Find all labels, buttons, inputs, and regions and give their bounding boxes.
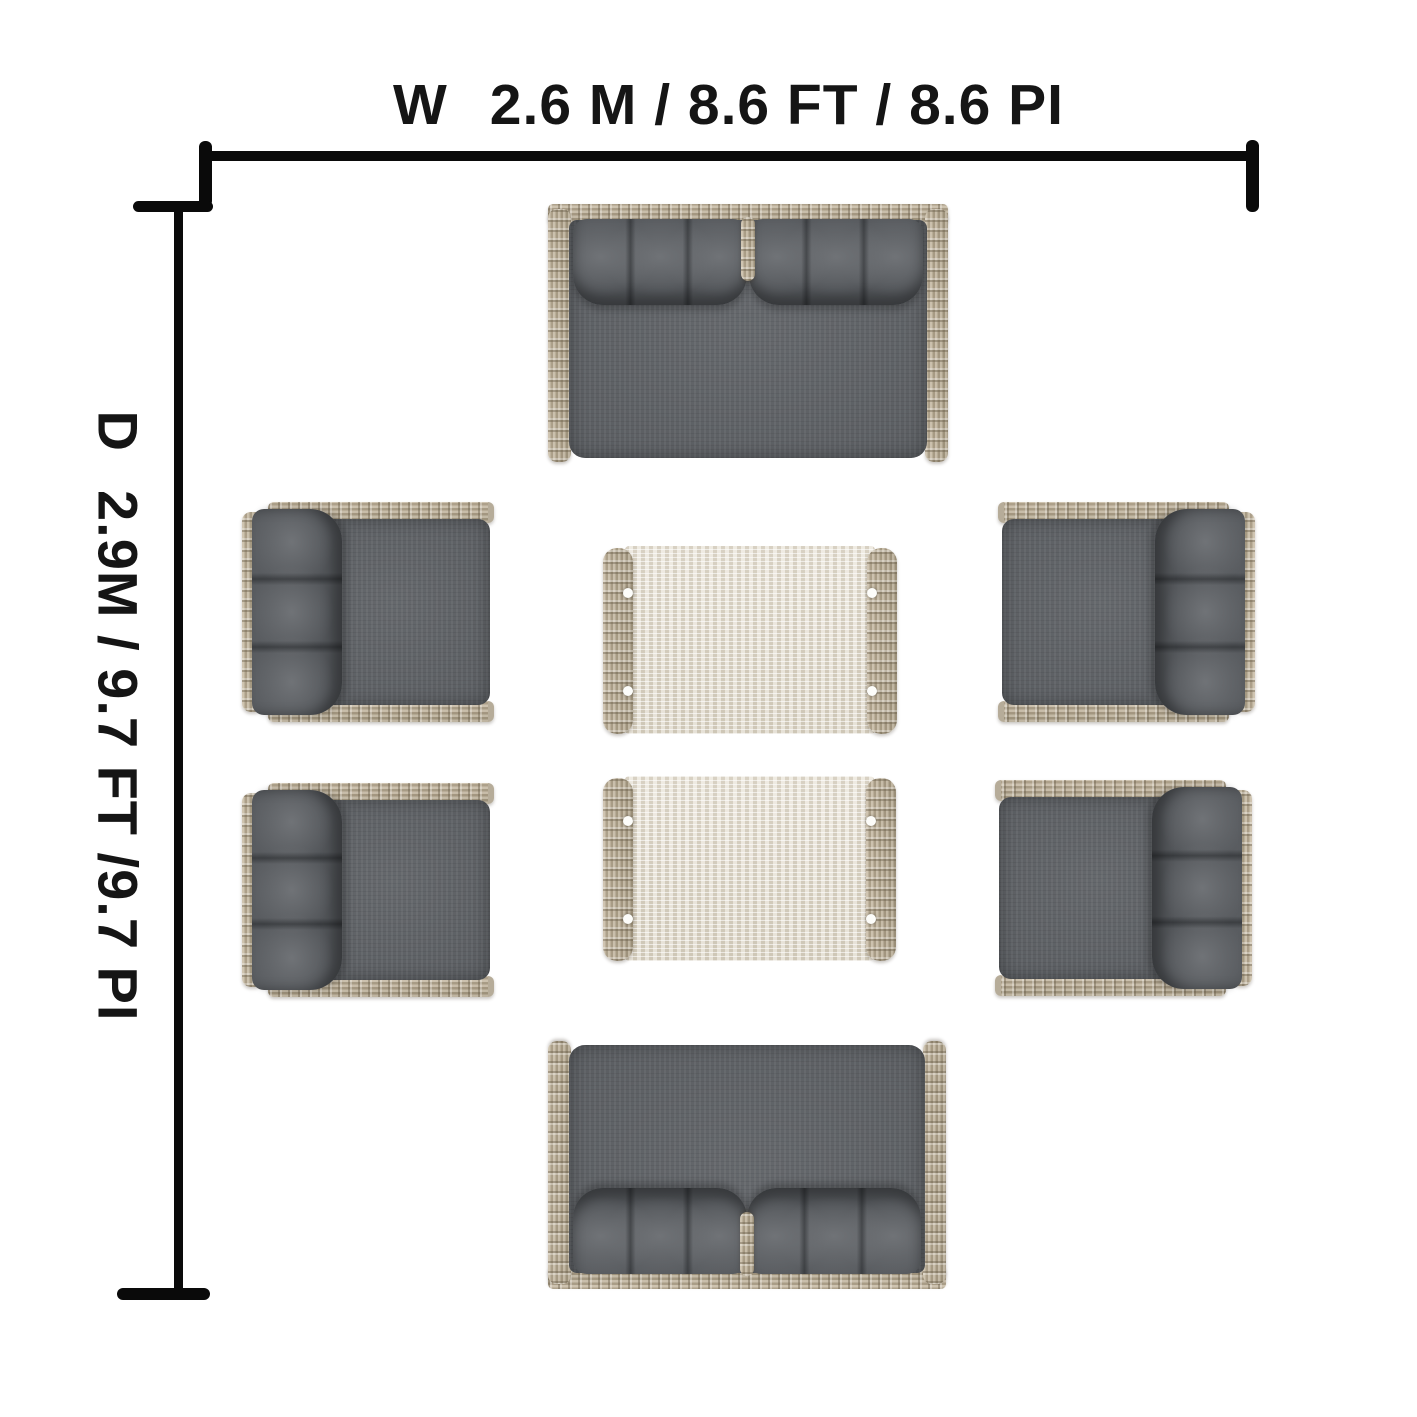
- table-rail-left: [603, 548, 633, 734]
- depth-dimension-tick-top: [133, 201, 213, 212]
- loveseat-center-post: [740, 1212, 754, 1276]
- width-dimension-tick-right: [1246, 140, 1259, 212]
- table-rattan-top: [625, 546, 875, 734]
- coffee-table-bottom: [603, 776, 896, 961]
- diagram-canvas: W 2.6 M / 8.6 FT / 8.6 PI D 2.9M / 9.7 F…: [0, 0, 1417, 1417]
- depth-dimension-tick-bottom: [117, 1288, 210, 1300]
- table-rattan-top: [625, 776, 874, 961]
- table-foot-dot: [867, 588, 877, 598]
- loveseat-top: [548, 204, 948, 462]
- coffee-table-top: [603, 546, 897, 734]
- armchair-top-left: [242, 502, 494, 722]
- armchair-bottom-right: [995, 780, 1252, 996]
- loveseat-arm-right: [925, 209, 948, 462]
- table-foot-dot: [623, 914, 633, 924]
- table-rail-left: [603, 778, 633, 961]
- depth-label-prefix: D: [86, 411, 151, 452]
- width-dimension-tick-left: [199, 141, 212, 207]
- loveseat-arm-right: [923, 1041, 946, 1284]
- loveseat-back-pillow-right: [749, 219, 923, 305]
- depth-dimension-label: D 2.9M / 9.7 FT /9.7 PI: [86, 411, 151, 1022]
- loveseat-back-pillow-left: [573, 1188, 747, 1274]
- table-foot-dot: [623, 686, 633, 696]
- loveseat-center-post: [741, 217, 755, 281]
- armchair-back-pillow: [252, 509, 342, 715]
- depth-dimension-line: [174, 205, 183, 1294]
- table-foot-dot: [623, 588, 633, 598]
- table-rail-right: [867, 548, 897, 734]
- loveseat-bottom: [548, 1041, 946, 1289]
- armchair-back-pillow: [1155, 509, 1245, 715]
- armchair-back-pillow: [1152, 787, 1242, 989]
- armchair-back-pillow: [252, 790, 342, 990]
- table-foot-dot: [866, 914, 876, 924]
- loveseat-arm-left: [548, 1041, 571, 1284]
- table-foot-dot: [623, 816, 633, 826]
- armchair-top-right: [998, 502, 1255, 722]
- width-label-value: 2.6 M / 8.6 FT / 8.6 PI: [490, 72, 1064, 138]
- armchair-bottom-left: [242, 783, 494, 997]
- width-dimension-label: W 2.6 M / 8.6 FT / 8.6 PI: [205, 72, 1252, 138]
- loveseat-back-pillow-left: [573, 219, 747, 305]
- table-foot-dot: [867, 686, 877, 696]
- loveseat-arm-left: [548, 209, 571, 462]
- table-rail-right: [866, 778, 896, 961]
- width-label-prefix: W: [393, 72, 448, 138]
- width-dimension-line: [205, 151, 1252, 161]
- loveseat-back-pillow-right: [747, 1188, 921, 1274]
- table-foot-dot: [866, 816, 876, 826]
- depth-label-value: 2.9M / 9.7 FT /9.7 PI: [86, 490, 151, 1021]
